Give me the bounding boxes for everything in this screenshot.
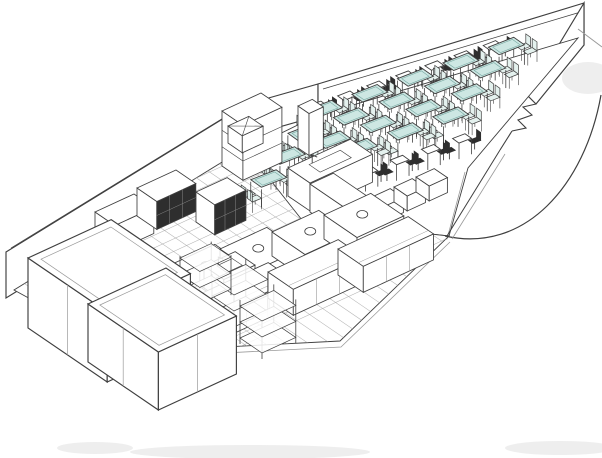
floorplan-3d-view: [0, 0, 602, 458]
shadow-smudge: [505, 441, 602, 455]
shadow-smudge: [130, 445, 370, 458]
restaurant-3d-floorplan-image: [0, 0, 602, 458]
box-front-face: [309, 107, 323, 156]
door-jamb-line: [500, 131, 512, 150]
box-left-face: [298, 106, 309, 156]
shadow-smudge: [57, 442, 133, 454]
shadow-smudge: [562, 62, 602, 94]
kitchen-box: [298, 99, 323, 155]
